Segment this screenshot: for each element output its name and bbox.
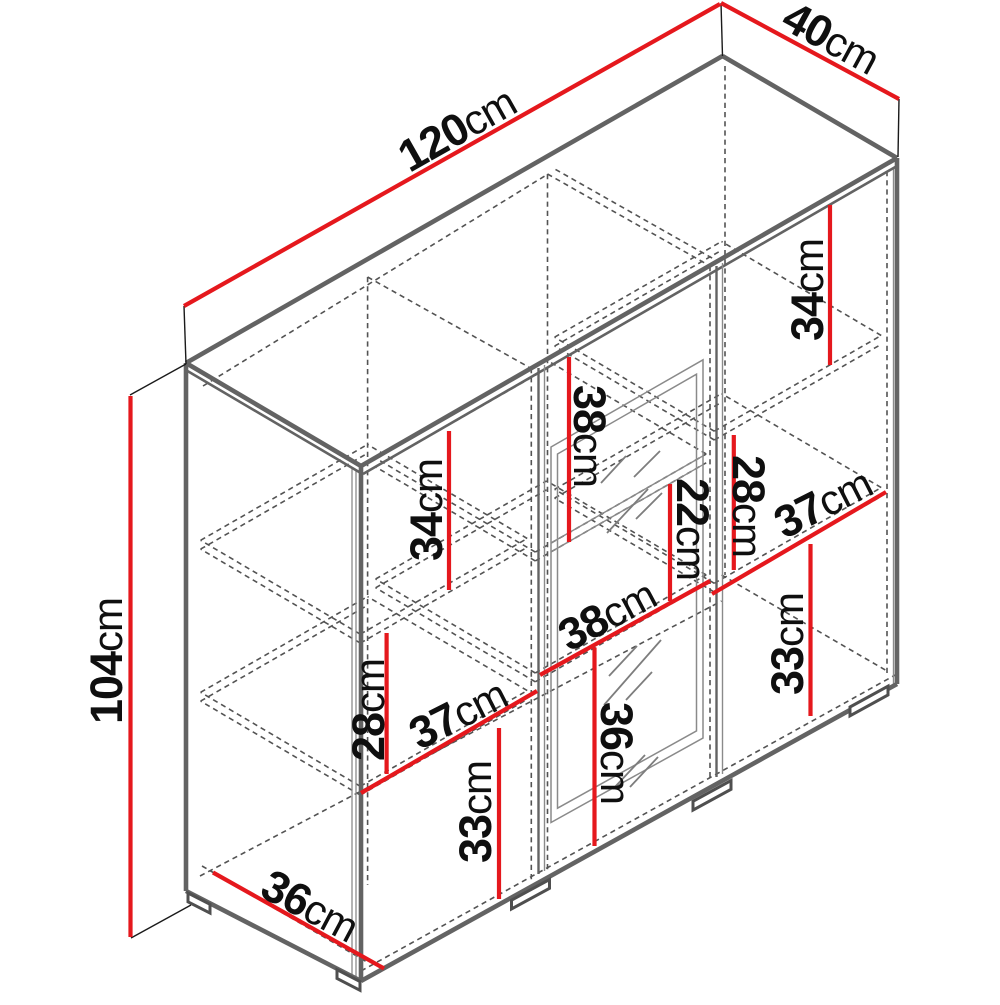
- svg-text:34cm: 34cm: [782, 239, 833, 341]
- svg-text:33cm: 33cm: [762, 593, 813, 695]
- svg-text:38cm: 38cm: [564, 385, 615, 487]
- svg-text:33cm: 33cm: [450, 761, 501, 863]
- svg-text:34cm: 34cm: [401, 459, 452, 561]
- svg-text:22cm: 22cm: [667, 478, 718, 580]
- svg-text:36cm: 36cm: [591, 702, 642, 804]
- svg-text:104cm: 104cm: [81, 598, 132, 724]
- svg-text:28cm: 28cm: [343, 659, 394, 761]
